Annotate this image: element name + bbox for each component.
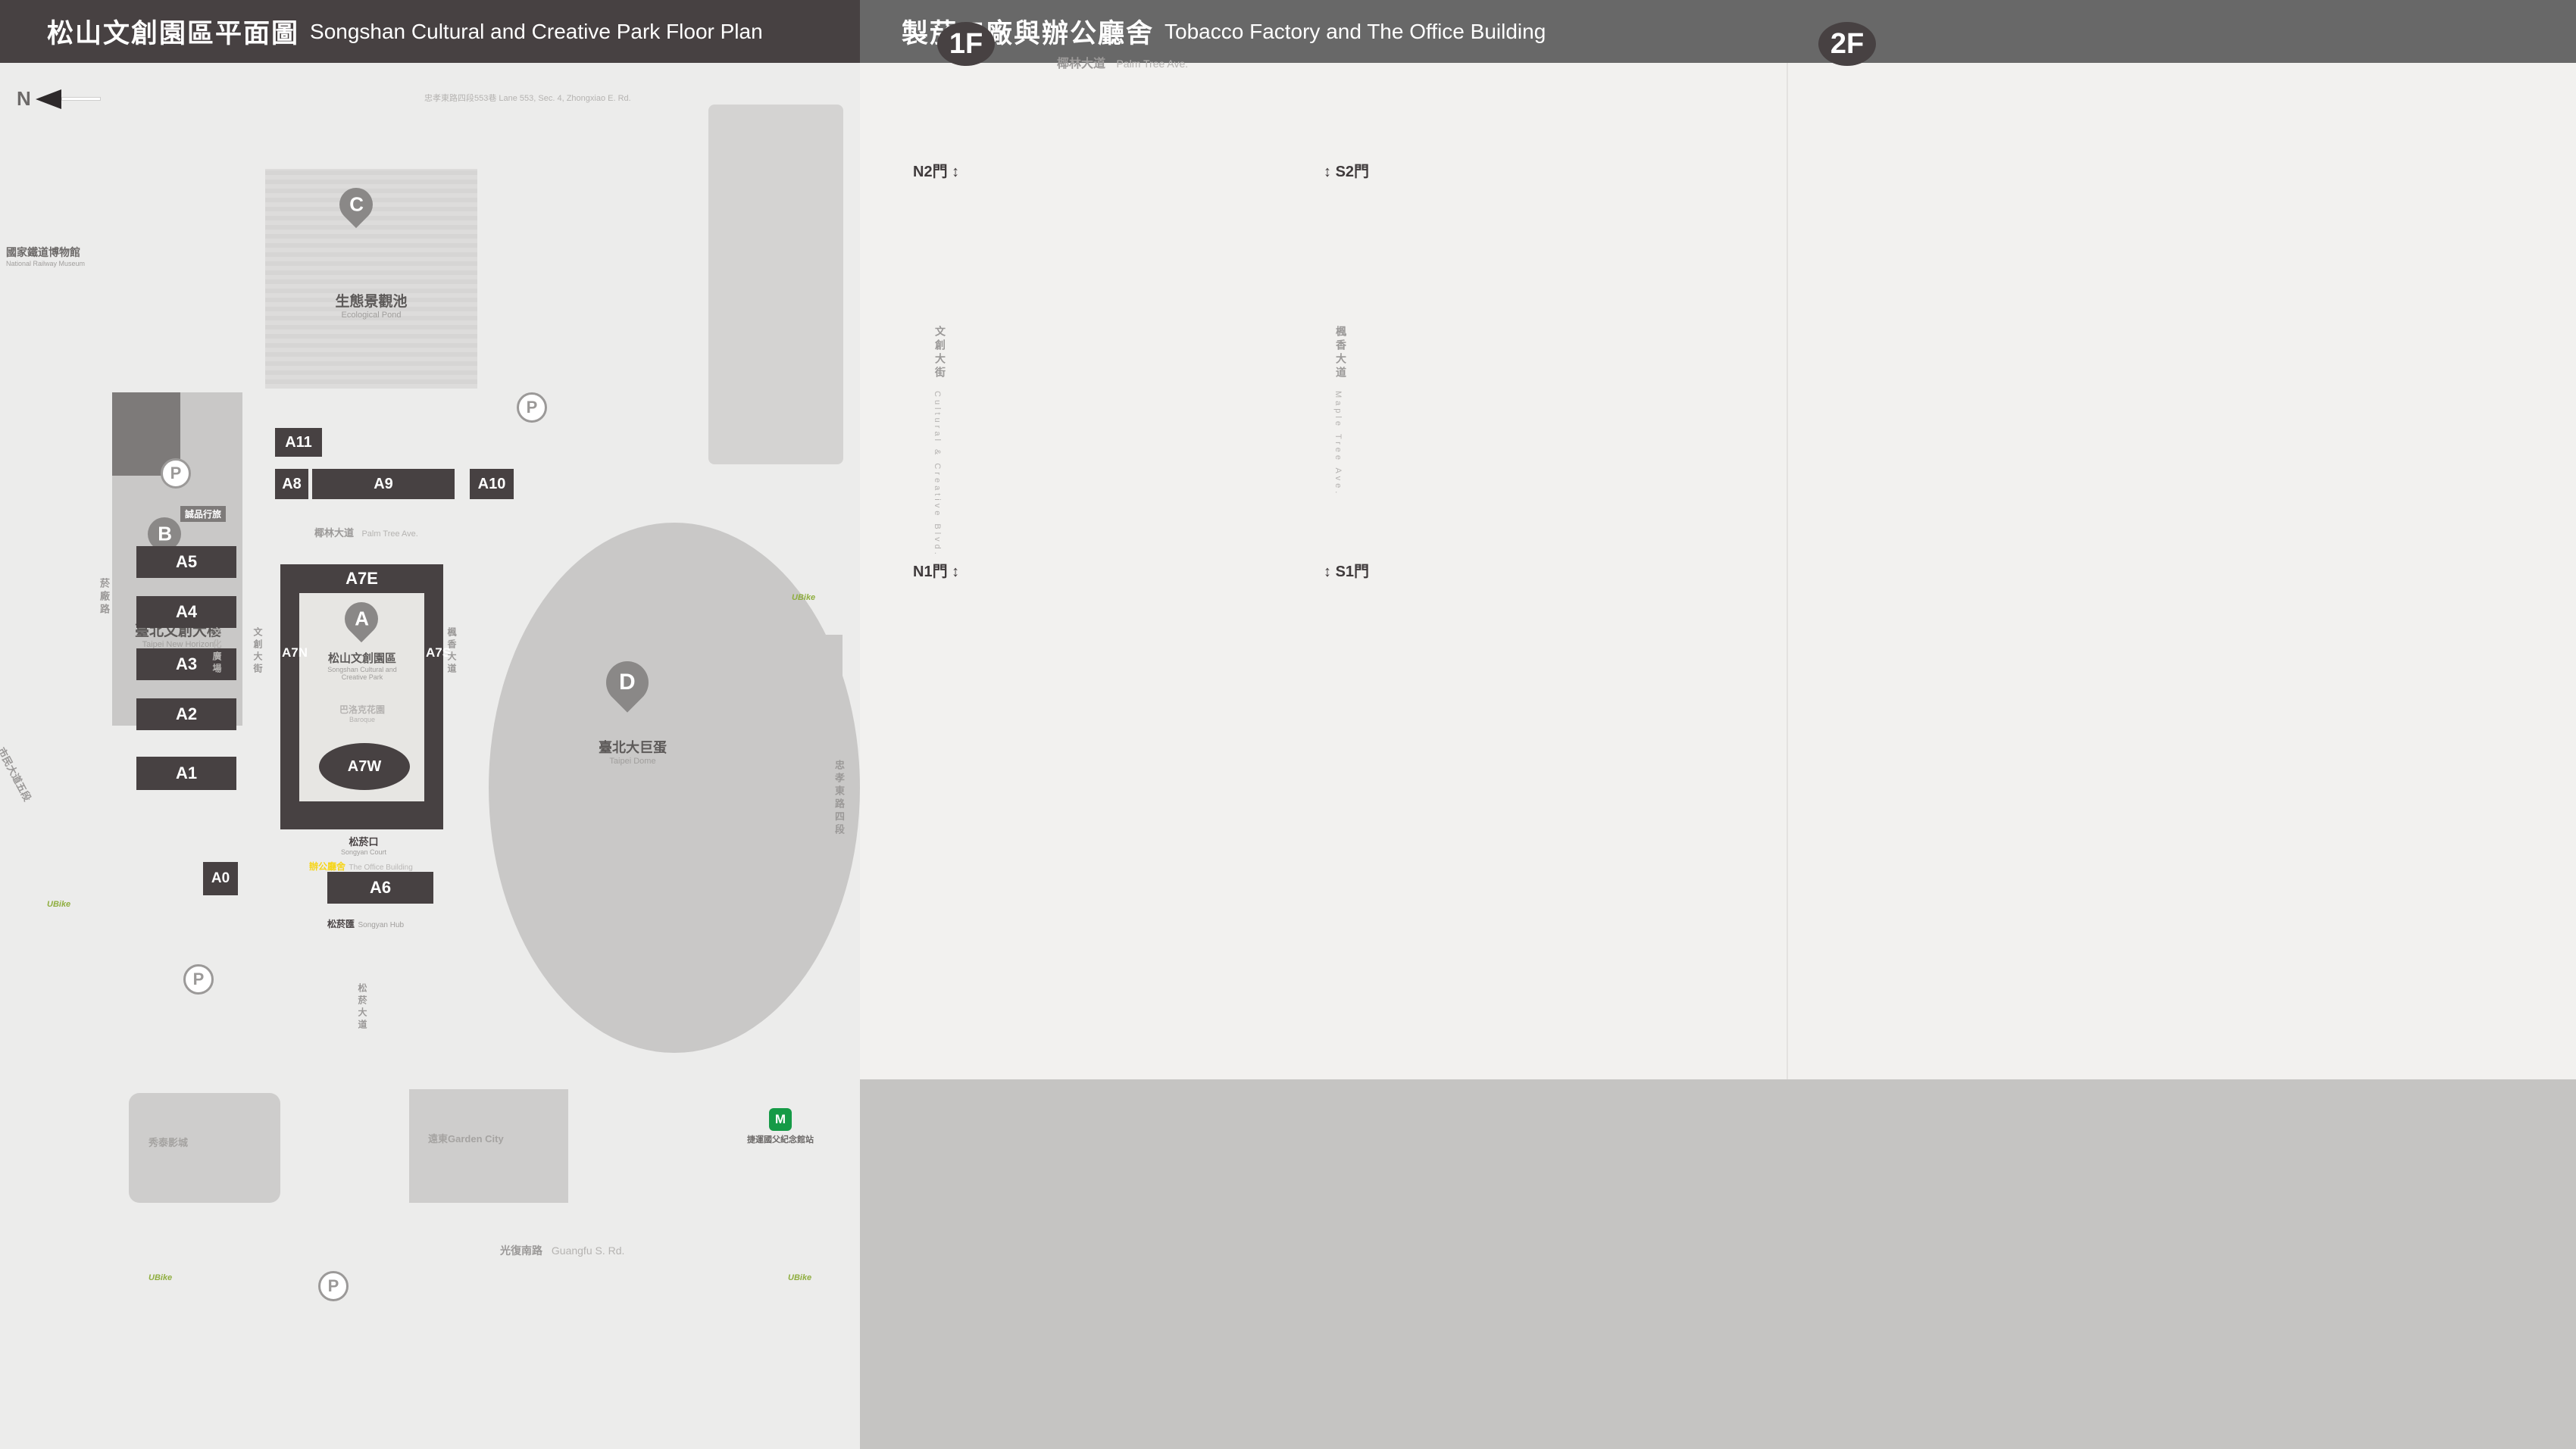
- building-a1: A1: [136, 757, 236, 790]
- building-a6-map: A6: [327, 872, 433, 904]
- road-yanchang: 菸廠路: [97, 578, 111, 617]
- context-building: [708, 105, 843, 464]
- court-label-map: 松菸口 Songyan Court: [322, 834, 405, 856]
- building-a4: A4: [136, 596, 236, 628]
- parking-icon: P: [183, 964, 214, 995]
- road-maple: 楓香大道: [445, 627, 458, 676]
- ubike-mark: UBike: [47, 900, 70, 909]
- eslite-hotel-label: 誠品行旅: [180, 506, 226, 522]
- baroque-label: 巴洛克花園 Baroque: [302, 703, 423, 723]
- office1-plan: [985, 1095, 1288, 1397]
- road-civic: 市民大道五段: [0, 745, 36, 804]
- ubike-mark: UBike: [792, 593, 815, 602]
- parking-icon: P: [517, 392, 547, 423]
- left-title-en: Songshan Cultural and Creative Park Floo…: [310, 20, 763, 44]
- a7e-label: A7E: [280, 569, 443, 589]
- park-map-panel: 松山文創園區平面圖 Songshan Cultural and Creative…: [0, 0, 860, 1449]
- road-songyan-ave: 松菸大道: [356, 983, 369, 1032]
- compass-north-icon: N: [17, 87, 101, 111]
- a7w-oval: A7W: [317, 741, 412, 792]
- building-a8: A8: [275, 469, 308, 499]
- road-cultural-blvd: 文創大街: [252, 627, 264, 676]
- park-label: 松山文創園區 Songshan Cultural and Creative Pa…: [302, 650, 423, 681]
- a7s-label: A7S: [426, 646, 442, 660]
- dome-label: 臺北大巨蛋 Taipei Dome: [576, 737, 689, 766]
- palm-ave-label: 椰林大道 Palm Tree Ave.: [314, 525, 418, 540]
- floor-plan-poster: 松山文創園區平面圖 Songshan Cultural and Creative…: [0, 0, 2576, 1449]
- a7n-label: A7N: [282, 646, 299, 660]
- parking-icon: P: [161, 458, 191, 489]
- building-a2: A2: [136, 698, 236, 730]
- factory-panel: 製菸工廠與辦公廳舍 Tobacco Factory and The Office…: [860, 0, 2576, 1449]
- building-a0: A0: [203, 862, 238, 895]
- railway-museum-label: 國家鐵道博物館 National Railway Museum: [6, 245, 120, 267]
- building-a10: A10: [470, 469, 514, 499]
- hub-label-map: 松菸匯 Songyan Hub: [327, 917, 404, 931]
- left-title-zh: 松山文創園區平面圖: [47, 12, 299, 51]
- left-header: 松山文創園區平面圖 Songshan Cultural and Creative…: [0, 0, 860, 63]
- road-top-label: 忠孝東路四段553巷 Lane 553, Sec. 4, Zhongxiao E…: [424, 92, 631, 104]
- road-plaza: 文化廣場: [211, 627, 224, 676]
- road-zhongxiao: 忠孝東路四段: [832, 760, 846, 837]
- building-a9: A9: [312, 469, 455, 499]
- taipei-dome: [489, 523, 860, 1053]
- map-legend: [0, 1057, 860, 1356]
- facility-legend-strip: [0, 1358, 2576, 1449]
- building-a11: A11: [275, 428, 322, 457]
- pond-label: 生態景觀池 Ecological Pond: [303, 290, 439, 320]
- building-a5: A5: [136, 546, 236, 578]
